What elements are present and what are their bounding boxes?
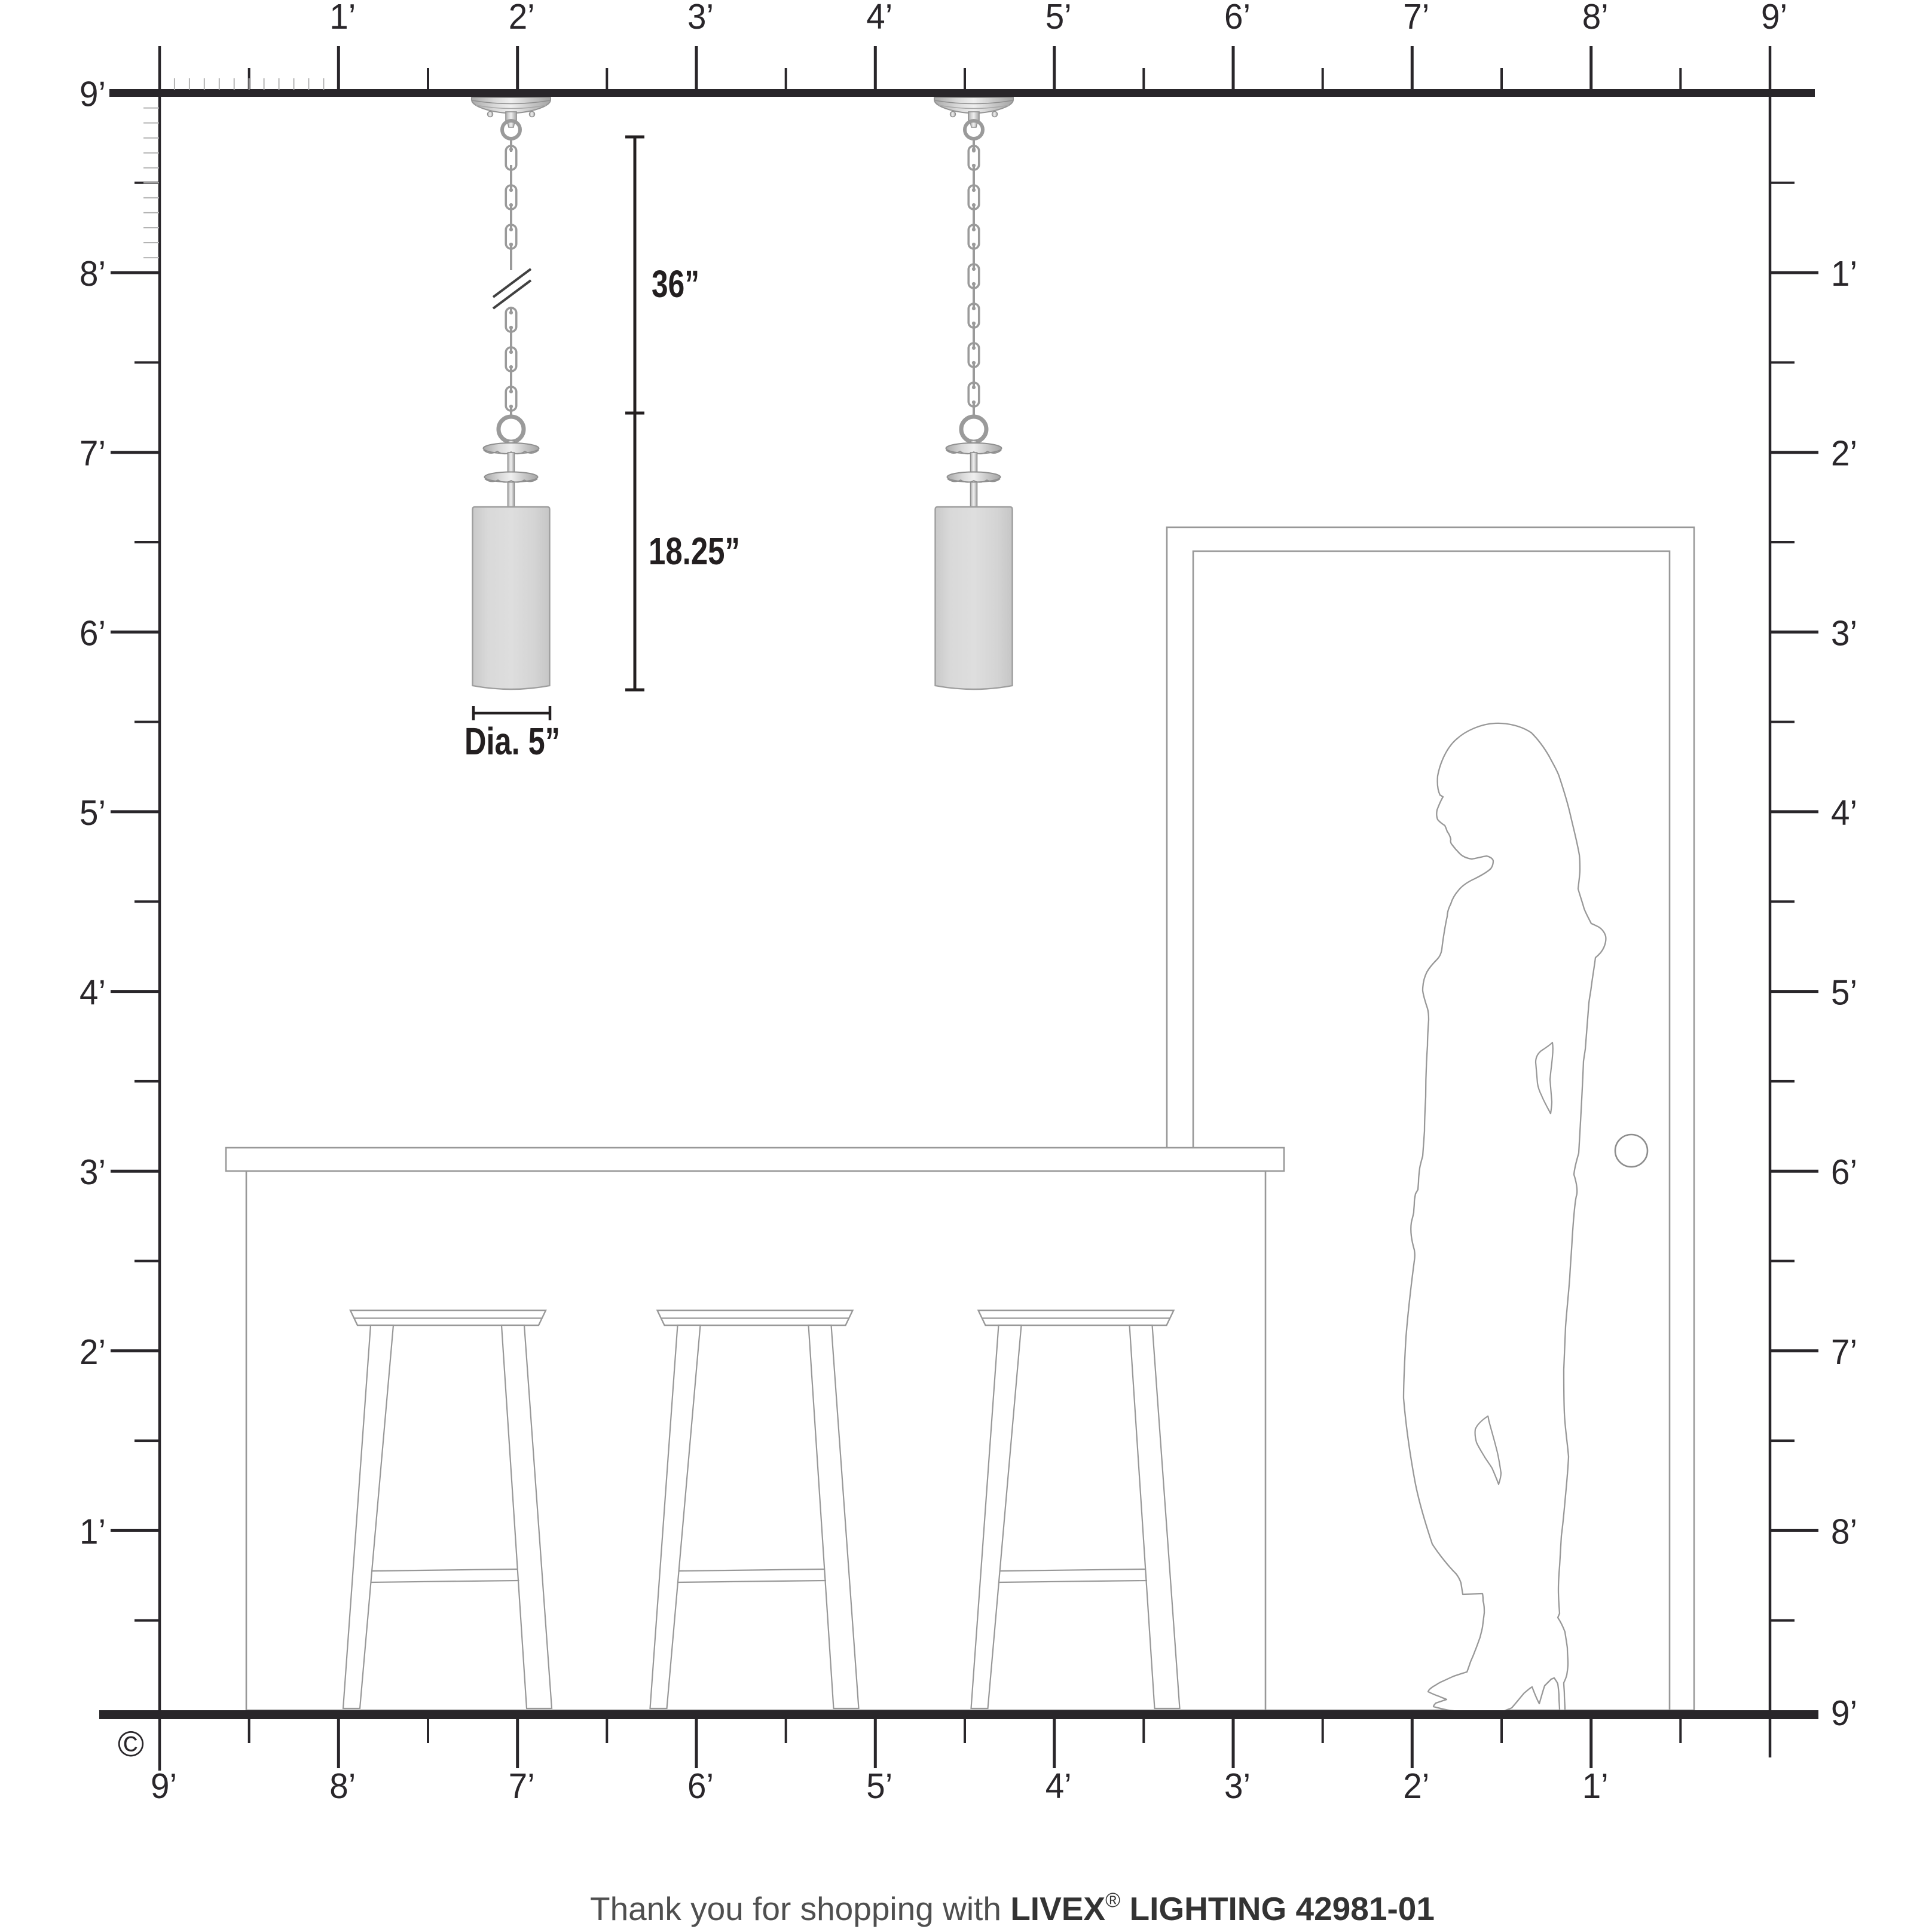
svg-text:1’: 1’ (1831, 254, 1857, 294)
svg-text:8’: 8’ (329, 1766, 356, 1806)
svg-text:18.25”: 18.25” (649, 530, 740, 573)
svg-text:2’: 2’ (80, 1332, 106, 1372)
svg-text:36”: 36” (652, 262, 699, 305)
svg-text:9’: 9’ (80, 75, 106, 114)
svg-text:3’: 3’ (80, 1153, 106, 1192)
svg-text:5’: 5’ (80, 793, 106, 833)
svg-text:6’: 6’ (1224, 0, 1251, 36)
svg-text:©: © (118, 1724, 144, 1764)
svg-text:8’: 8’ (1831, 1512, 1857, 1551)
svg-text:1’: 1’ (80, 1512, 106, 1551)
svg-text:5’: 5’ (1046, 0, 1072, 36)
svg-text:7’: 7’ (1403, 0, 1429, 36)
svg-text:Thank you for shopping with LI: Thank you for shopping with LIVEX® LIGHT… (590, 1889, 1435, 1927)
svg-text:2’: 2’ (509, 0, 535, 36)
svg-text:4’: 4’ (80, 973, 106, 1013)
svg-text:7’: 7’ (509, 1766, 535, 1806)
svg-text:4’: 4’ (1831, 793, 1857, 833)
svg-text:1’: 1’ (329, 0, 356, 36)
svg-text:6’: 6’ (80, 613, 106, 653)
svg-text:5’: 5’ (866, 1766, 892, 1806)
svg-text:6’: 6’ (687, 1766, 714, 1806)
svg-text:6’: 6’ (1831, 1153, 1857, 1192)
svg-text:7’: 7’ (80, 434, 106, 473)
svg-text:2’: 2’ (1831, 434, 1857, 473)
svg-text:9’: 9’ (1831, 1693, 1857, 1733)
svg-text:4’: 4’ (1046, 1766, 1072, 1806)
svg-text:9’: 9’ (1761, 0, 1787, 36)
svg-text:1’: 1’ (1582, 1766, 1609, 1806)
svg-text:9’: 9’ (151, 1766, 177, 1806)
svg-text:3’: 3’ (1224, 1766, 1251, 1806)
svg-text:3’: 3’ (687, 0, 714, 36)
svg-text:4’: 4’ (866, 0, 892, 36)
svg-text:Dia. 5”: Dia. 5” (464, 720, 560, 763)
svg-text:2’: 2’ (1403, 1766, 1429, 1806)
svg-text:8’: 8’ (1582, 0, 1609, 36)
svg-text:5’: 5’ (1831, 973, 1857, 1013)
svg-text:3’: 3’ (1831, 613, 1857, 653)
svg-text:8’: 8’ (80, 254, 106, 294)
svg-text:7’: 7’ (1831, 1332, 1857, 1372)
